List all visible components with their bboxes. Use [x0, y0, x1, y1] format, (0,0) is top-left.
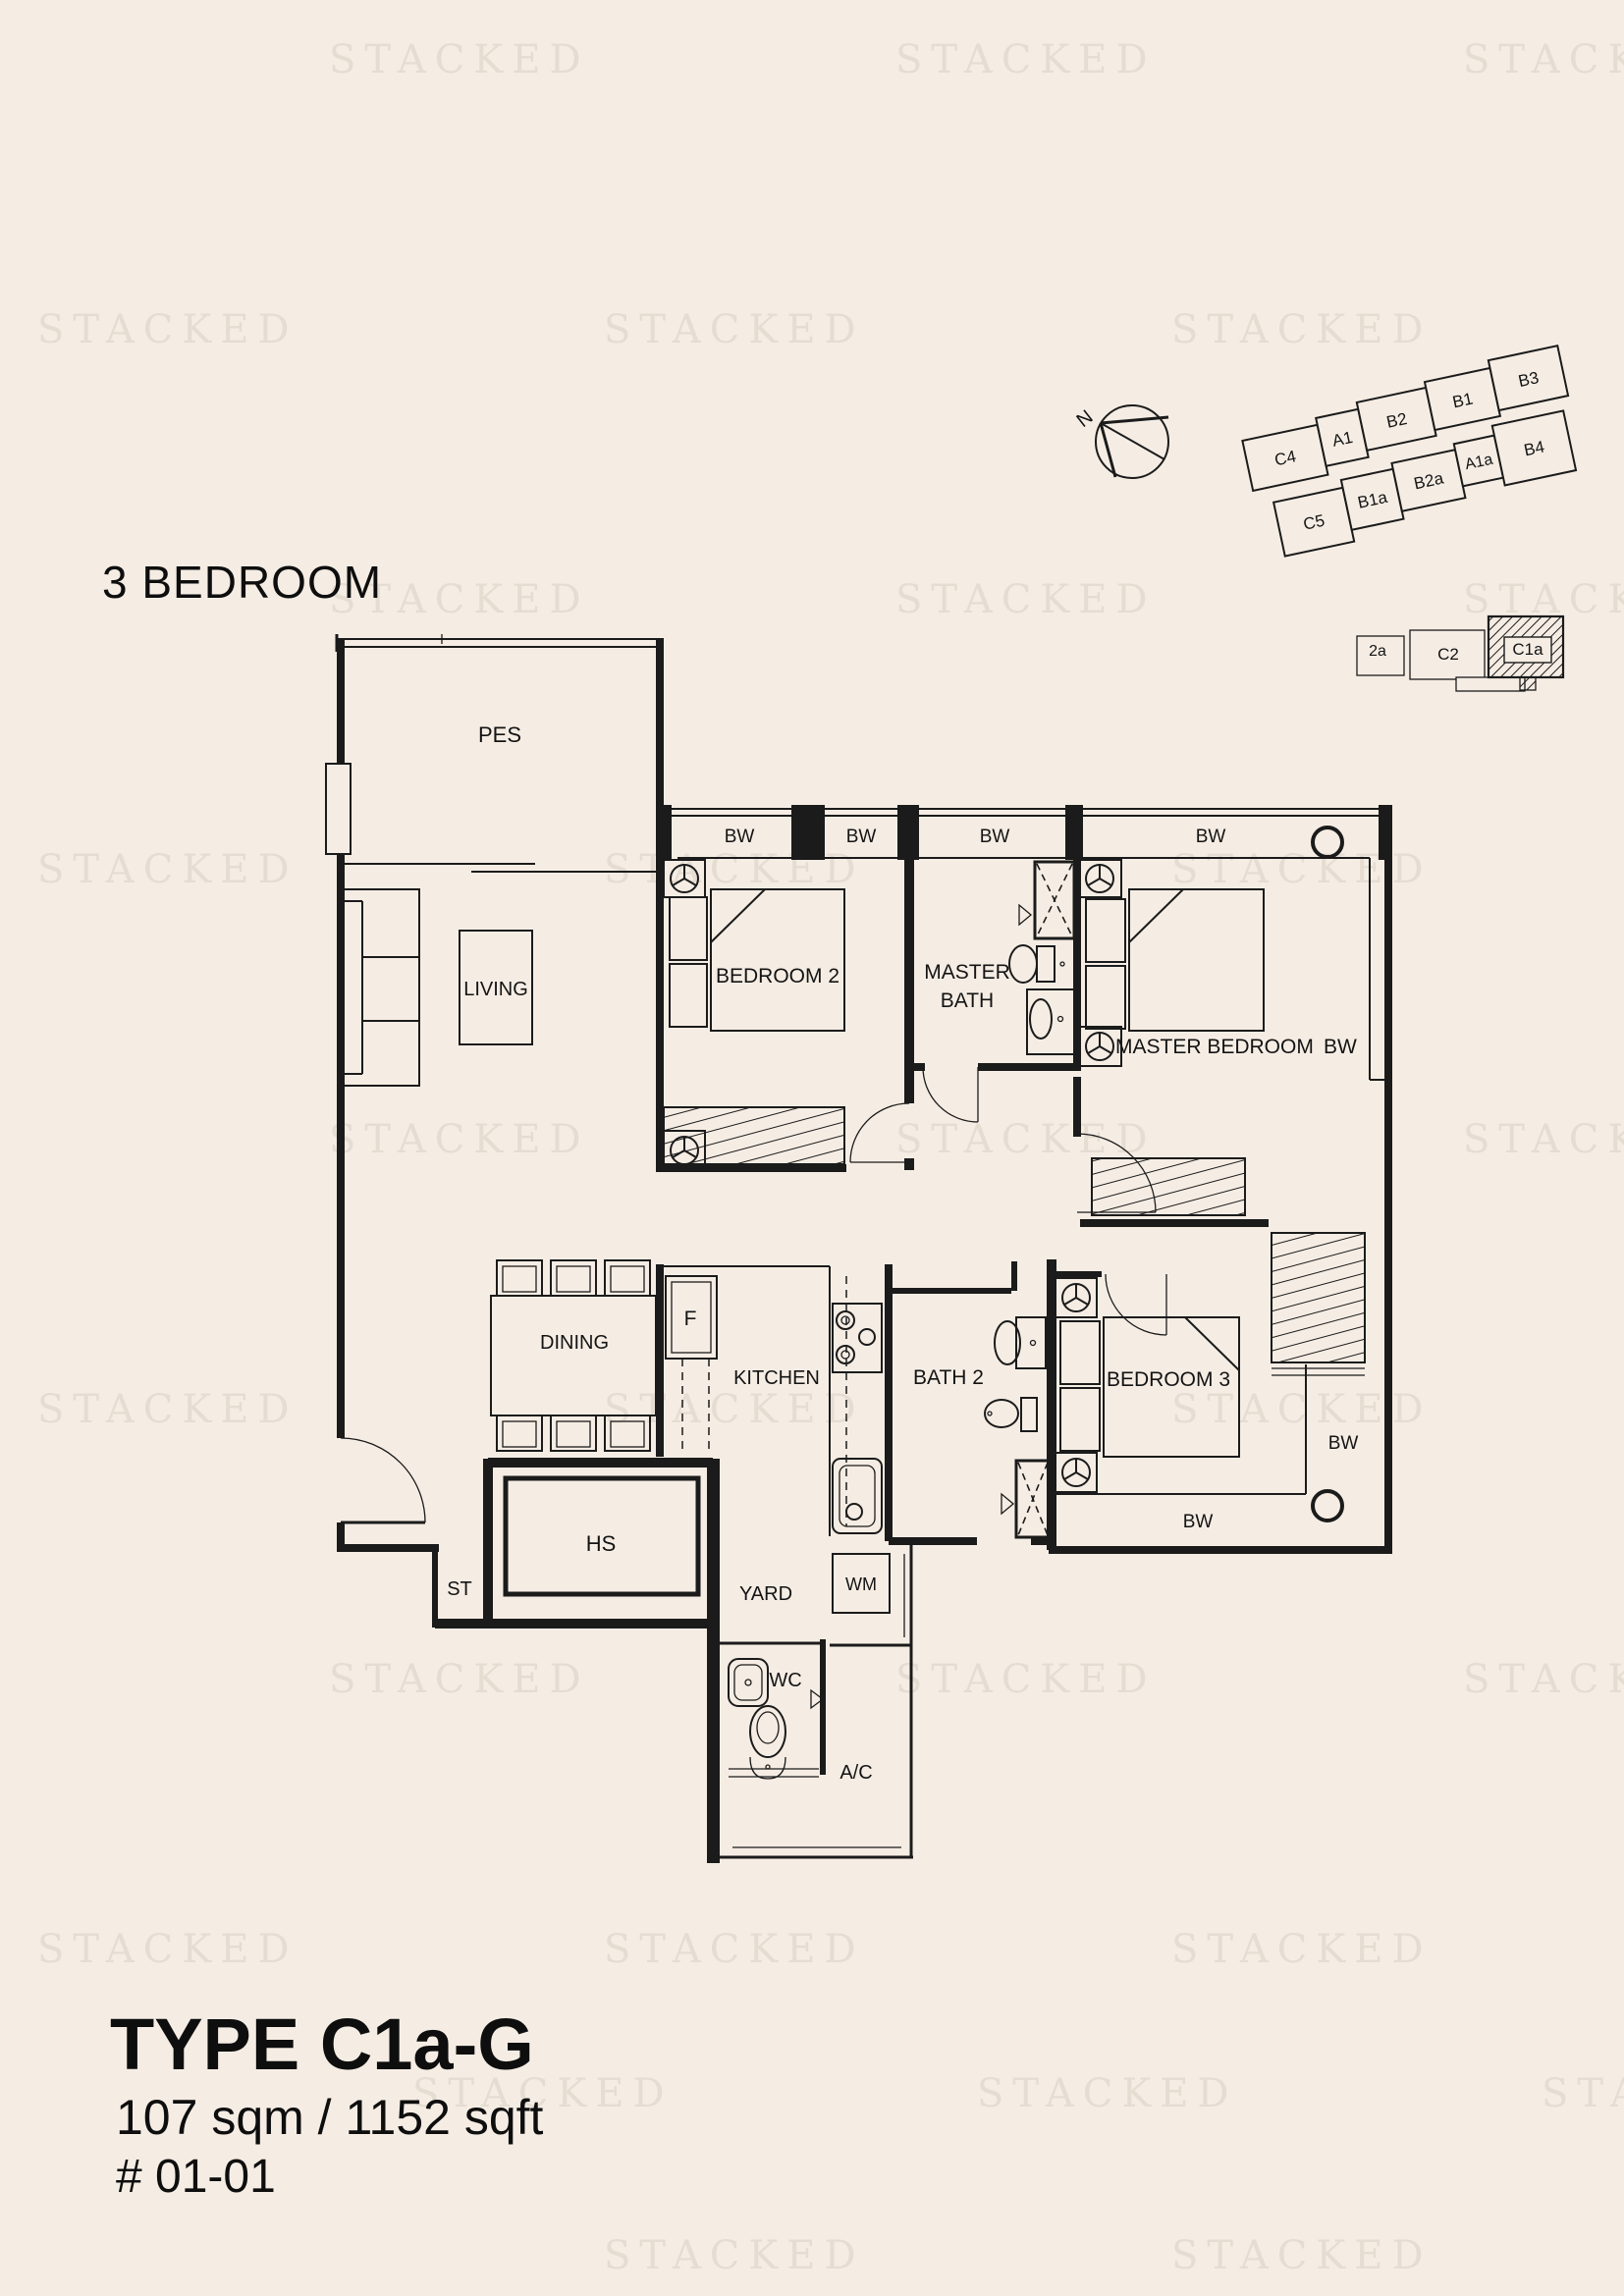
svg-text:2a: 2a — [1369, 643, 1386, 660]
room-hs: HS ST — [435, 1459, 713, 1628]
kitchen-sink-icon — [833, 1459, 882, 1533]
site-block-b2: B2 — [1357, 388, 1436, 451]
aircon-icon — [664, 860, 705, 897]
floorplan-page: STACKED STACKED STACKED STACKED STACKED … — [0, 0, 1624, 2296]
compass-icon: N — [1073, 405, 1168, 478]
bedside-table — [1060, 1388, 1100, 1451]
mini-block-c2: C2 — [1410, 630, 1485, 679]
toilet-icon — [1009, 945, 1064, 983]
bedside-table — [1060, 1321, 1100, 1384]
column — [1313, 828, 1342, 857]
wardrobe — [664, 1107, 844, 1164]
svg-text:C2: C2 — [1437, 645, 1459, 664]
sink-icon — [1027, 989, 1074, 1054]
bw-label: BW — [725, 827, 755, 847]
washing-machine-icon: WM — [833, 1554, 890, 1613]
room-label-kitchen: KITCHEN — [733, 1367, 820, 1389]
room-living: LIVING — [337, 869, 532, 1552]
floor-plan-svg: N C4 A1 B2 B1 B3 C5 B1a B2a A1a B4 2a C2… — [0, 0, 1624, 2296]
door-swing — [923, 1067, 978, 1122]
bedside-table — [670, 897, 707, 960]
stove-icon — [833, 1304, 882, 1372]
room-label-master-bedroom: MASTER BEDROOM — [1115, 1036, 1314, 1058]
door-swing — [850, 1103, 909, 1162]
mini-block-2a: 2a — [1357, 636, 1404, 675]
room-label-hs: HS — [586, 1531, 617, 1556]
mini-site-plan: 2a C2 C1a — [1357, 616, 1563, 691]
shower-icon — [1001, 1461, 1050, 1537]
room-label-wm: WM — [845, 1575, 877, 1594]
room-label-pes: PES — [478, 722, 521, 747]
room-label-bedroom2: BEDROOM 2 — [716, 965, 839, 988]
wc-sink-icon — [729, 1659, 768, 1706]
page-title: 3 BEDROOM — [102, 556, 382, 609]
dining-chair — [497, 1260, 542, 1296]
room-ac: A/C — [720, 1645, 913, 1857]
bedside-table — [670, 964, 707, 1027]
svg-text:C1a: C1a — [1512, 640, 1543, 659]
aircon-icon — [1078, 860, 1121, 897]
site-block-c5: C5 — [1273, 488, 1354, 557]
room-label-master-bath-1: MASTER — [924, 961, 1010, 984]
bw-label: BW — [1328, 1433, 1359, 1454]
room-label-master-bath-2: BATH — [941, 989, 994, 1012]
room-bedroom3: BEDROOM 3 BW BW — [1049, 1233, 1392, 1550]
bedside-table — [1086, 899, 1125, 962]
column — [1313, 1491, 1342, 1521]
dining-chair — [497, 1415, 542, 1451]
room-label-yard: YARD — [739, 1583, 792, 1605]
room-wc: WC — [720, 1639, 823, 1779]
room-master-bedroom: MASTER BEDROOM BW — [1077, 860, 1357, 1223]
unit-floor-plan: PES BW BW BW BW — [326, 634, 1392, 1863]
dining-chair — [551, 1415, 596, 1451]
unit-area: 107 sqm / 1152 sqft — [116, 2089, 543, 2146]
bw-label: BW — [980, 827, 1010, 847]
bw-label: BW — [1196, 827, 1226, 847]
aircon-icon — [1056, 1278, 1097, 1317]
room-bath2: BATH 2 — [889, 1261, 1052, 1541]
site-block-c4: C4 — [1242, 425, 1327, 491]
toilet-icon — [750, 1706, 785, 1779]
bedside-table — [1086, 966, 1125, 1029]
dining-table — [491, 1296, 656, 1415]
room-label-ac: A/C — [839, 1762, 872, 1784]
room-bedroom2: BEDROOM 2 — [656, 858, 909, 1170]
site-block-b1: B1 — [1425, 368, 1500, 430]
top-window-band: BW BW BW BW — [656, 805, 1392, 860]
bed — [711, 889, 844, 1031]
unit-type-title: TYPE C1a-G — [110, 2002, 534, 2086]
room-label-living: LIVING — [463, 979, 528, 1000]
room-label-dining: DINING — [540, 1332, 609, 1354]
room-pes: PES — [326, 634, 664, 1170]
room-label-bath2: BATH 2 — [913, 1366, 984, 1389]
sink-icon — [995, 1317, 1046, 1368]
bw-label: BW — [1183, 1512, 1214, 1532]
dining-chair — [551, 1260, 596, 1296]
unit-number: # 01-01 — [116, 2150, 276, 2204]
room-kitchen: F KITCHEN — [660, 1264, 889, 1541]
sofa — [339, 889, 419, 1086]
wardrobe — [1092, 1158, 1245, 1215]
aircon-icon — [1056, 1453, 1097, 1492]
compass-north-label: N — [1073, 406, 1098, 432]
room-label-wc: WC — [769, 1670, 801, 1691]
entrance-door-swing — [341, 1438, 425, 1522]
wardrobe — [1272, 1233, 1365, 1362]
room-label-st: ST — [447, 1578, 472, 1600]
door-swing — [1106, 1274, 1166, 1335]
room-master-bath: MASTER BATH — [909, 858, 1077, 1122]
bw-label: BW — [846, 827, 877, 847]
room-yard: YARD WM — [707, 1459, 911, 1863]
fridge-label: F — [684, 1308, 697, 1330]
dining-chair — [605, 1260, 650, 1296]
site-plan: C4 A1 B2 B1 B3 C5 B1a B2a A1a B4 — [1237, 346, 1589, 560]
site-block-b4: B4 — [1492, 410, 1576, 485]
site-block-b2a: B2a — [1391, 450, 1465, 511]
fridge-icon: F — [666, 1276, 717, 1359]
room-label-bedroom3: BEDROOM 3 — [1107, 1368, 1230, 1391]
dining-chair — [605, 1415, 650, 1451]
toilet-icon — [985, 1398, 1037, 1431]
site-block-b3: B3 — [1489, 346, 1568, 410]
shower-icon — [1019, 862, 1074, 938]
bed — [1129, 889, 1264, 1031]
bw-label: BW — [1324, 1036, 1357, 1058]
room-dining: DINING — [491, 1260, 656, 1451]
